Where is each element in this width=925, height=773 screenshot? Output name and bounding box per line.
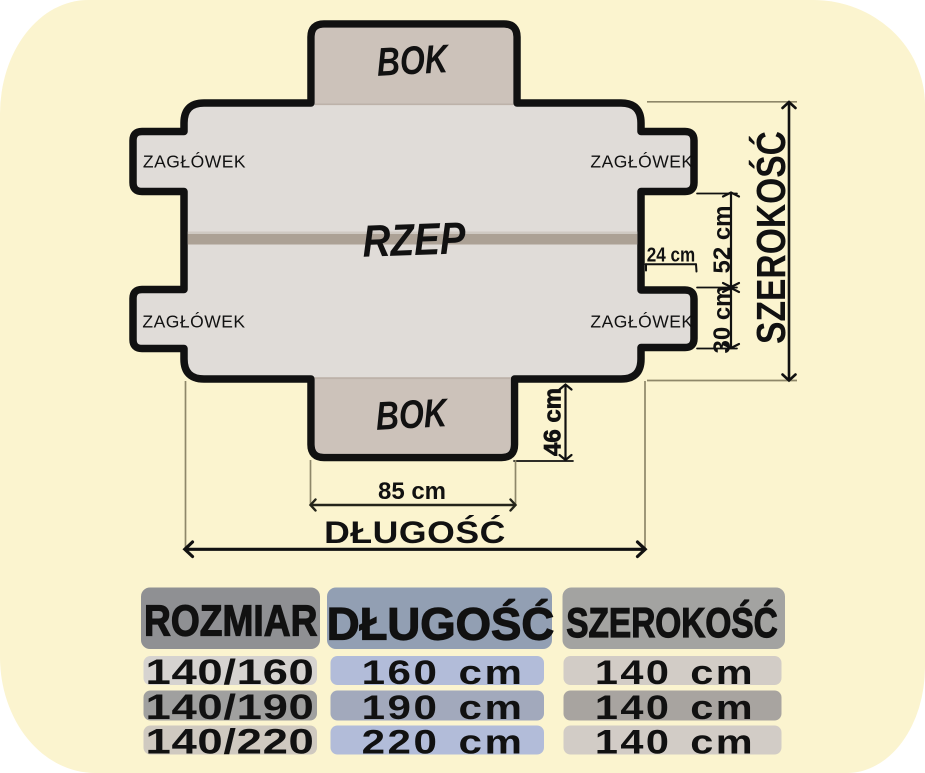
svg-text:DŁUGOŚĆ: DŁUGOŚĆ	[324, 515, 506, 551]
svg-text:52 cm: 52 cm	[709, 205, 736, 273]
svg-text:DŁUGOŚĆ: DŁUGOŚĆ	[327, 598, 555, 650]
svg-text:ZAGŁÓWEK: ZAGŁÓWEK	[590, 151, 693, 172]
svg-text:ZAGŁÓWEK: ZAGŁÓWEK	[143, 151, 246, 172]
svg-text:160 cm: 160 cm	[362, 654, 525, 692]
svg-text:140/160: 140/160	[146, 652, 315, 692]
svg-text:BOK: BOK	[376, 36, 452, 85]
svg-text:SZEROKOŚĆ: SZEROKOŚĆ	[748, 131, 794, 344]
svg-text:140/220: 140/220	[146, 722, 315, 762]
svg-text:24 cm: 24 cm	[647, 243, 695, 266]
svg-text:ZAGŁÓWEK: ZAGŁÓWEK	[142, 311, 245, 332]
svg-text:140 cm: 140 cm	[595, 724, 755, 762]
svg-text:220 cm: 220 cm	[362, 723, 525, 761]
svg-text:140 cm: 140 cm	[595, 689, 755, 727]
svg-text:ZAGŁÓWEK: ZAGŁÓWEK	[590, 311, 693, 332]
svg-text:85 cm: 85 cm	[378, 478, 446, 505]
svg-text:ROZMIAR: ROZMIAR	[144, 596, 317, 646]
svg-text:RZEP: RZEP	[362, 212, 468, 266]
svg-text:30 cm: 30 cm	[709, 285, 736, 353]
svg-text:BOK: BOK	[375, 390, 451, 439]
svg-text:SZEROKOŚĆ: SZEROKOŚĆ	[566, 600, 778, 646]
svg-text:190 cm: 190 cm	[362, 689, 525, 727]
svg-text:140 cm: 140 cm	[595, 654, 755, 692]
svg-text:46 cm: 46 cm	[540, 388, 567, 456]
